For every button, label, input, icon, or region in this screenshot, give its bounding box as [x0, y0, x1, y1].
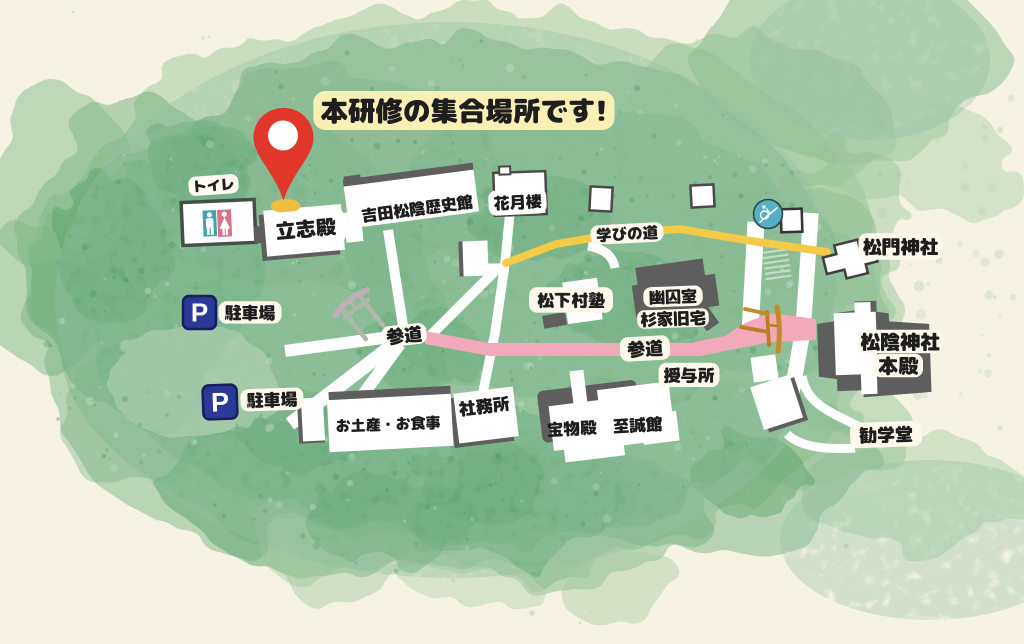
svg-text:P: P [210, 387, 229, 418]
svg-text:P: P [191, 298, 208, 328]
